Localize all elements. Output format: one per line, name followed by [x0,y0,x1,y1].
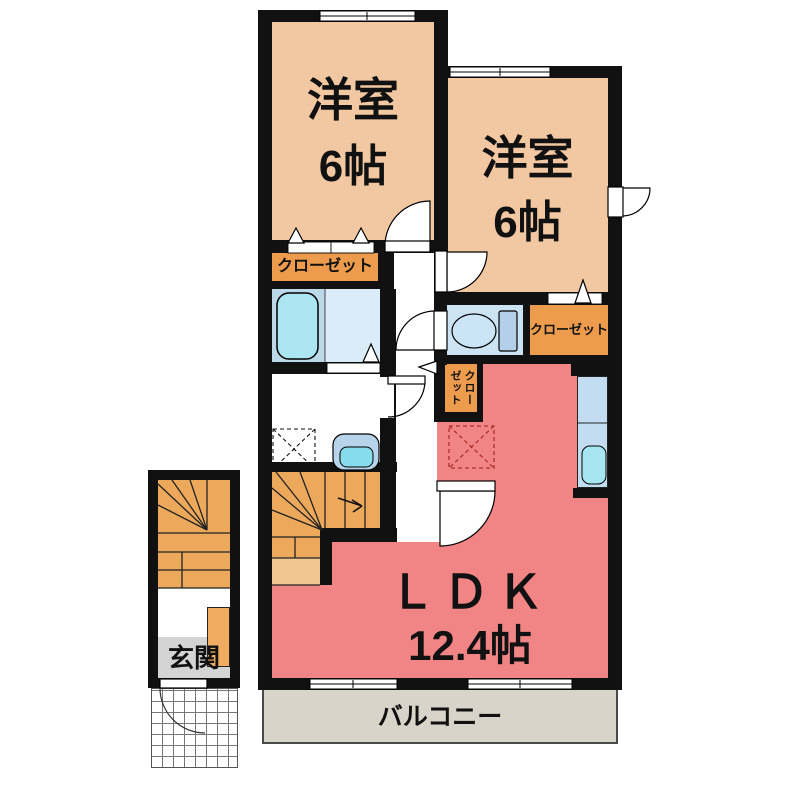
wall [608,66,622,690]
wall [258,240,448,253]
wall [258,10,272,690]
bathroom-floor [325,289,380,362]
entry-staircase-floor [158,480,230,588]
wall [434,250,447,365]
floor-plan: 洋室 6帖 洋室 6帖 クローゼット クローゼット クローゼット ＬＤＫ 12.… [0,0,800,800]
kitchen-counter [577,376,608,488]
wall [258,281,394,289]
wall [258,678,622,690]
closet-bedroom2-label: クローゼット [530,305,608,355]
wall [148,678,240,688]
staircase-floor [272,472,383,530]
bedroom2-label: 洋室 [447,122,608,188]
wall [434,412,483,422]
closet-bedroom1-label: クローゼット [272,253,378,281]
wall [477,364,483,412]
wall [380,289,396,542]
bedroom1-area: 6帖 [272,130,434,194]
wall [434,66,622,78]
bedroom2-area: 6帖 [447,186,608,250]
wall [148,470,158,688]
wall [434,364,445,412]
wall [258,10,448,22]
wall [320,528,332,585]
wall [573,488,611,498]
ldk-area: 12.4帖 [332,612,608,673]
wall [571,364,611,376]
balcony-label: バルコニー [262,692,618,742]
ldk-floor [272,585,332,678]
wall [258,362,394,374]
ldk-floor [437,422,477,490]
wall [148,470,240,480]
wall [434,10,448,253]
wall [322,528,397,542]
bathroom-tub-floor [272,289,325,362]
staircase-landing [272,558,320,585]
wall [434,355,622,364]
entrance-porch [151,688,238,768]
closet-hall-label: クローゼット [447,367,476,409]
wall [258,462,397,472]
wall [434,292,622,305]
entrance-label: 玄関 [158,640,230,676]
bedroom1-label: 洋室 [272,64,434,130]
wall [523,305,530,355]
wall [230,470,240,688]
toilet-room-floor [447,305,523,355]
staircase-floor [272,530,320,558]
